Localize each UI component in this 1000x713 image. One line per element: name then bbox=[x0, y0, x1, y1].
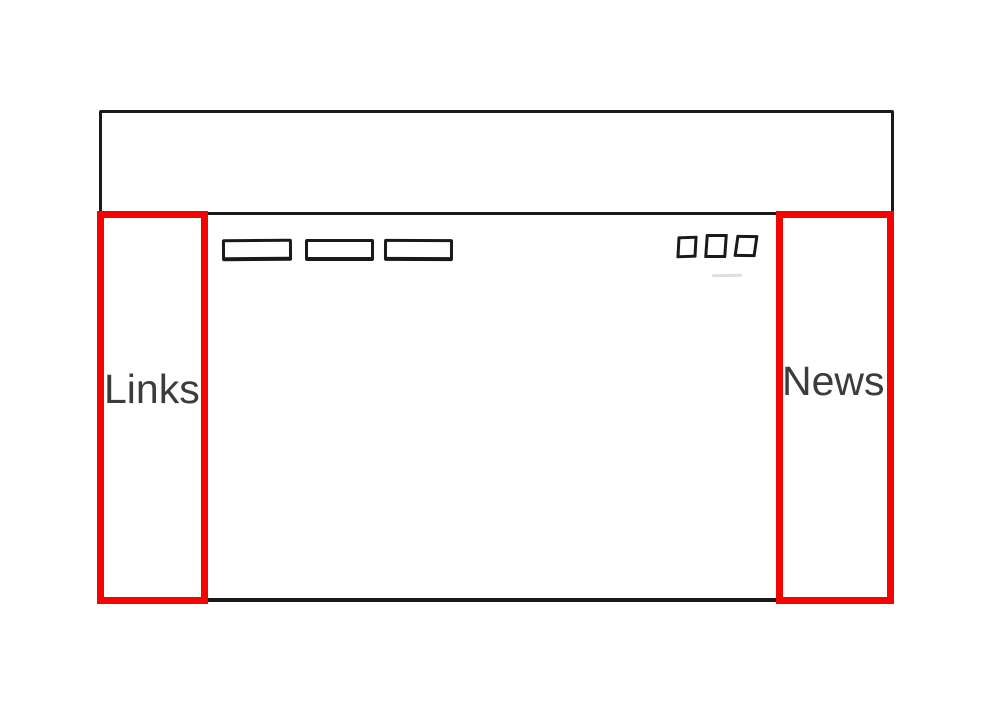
links-label: Links bbox=[104, 369, 200, 410]
nav-button-placeholder-3[interactable] bbox=[384, 239, 453, 261]
pencil-smudge bbox=[712, 274, 742, 278]
news-sidebar-highlight bbox=[776, 211, 894, 604]
nav-button-placeholder-2[interactable] bbox=[305, 239, 374, 261]
menu-square-placeholder-2[interactable] bbox=[704, 234, 728, 258]
nav-button-placeholder-1[interactable] bbox=[222, 239, 292, 261]
menu-square-placeholder-3[interactable] bbox=[733, 235, 758, 257]
header-box bbox=[99, 110, 894, 215]
wireframe-sketch-canvas: Links News bbox=[0, 0, 1000, 713]
news-label: News bbox=[782, 361, 885, 402]
main-content-box bbox=[99, 212, 894, 602]
menu-square-placeholder-1[interactable] bbox=[676, 236, 697, 259]
